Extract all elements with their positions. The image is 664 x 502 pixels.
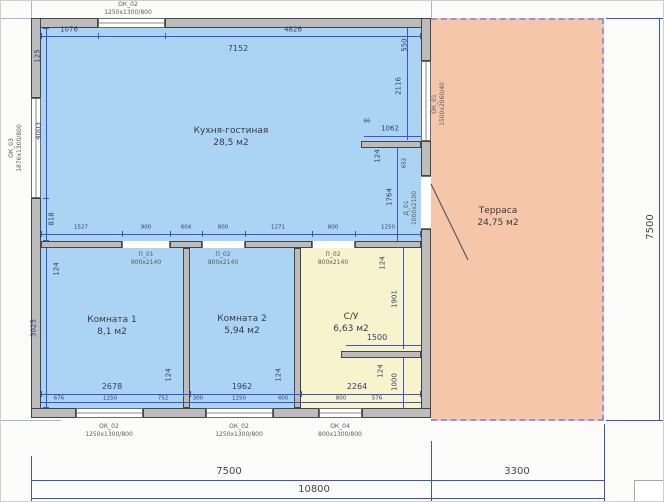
room-area: 28,5 м2 xyxy=(194,137,269,149)
dim-label: 800 xyxy=(328,225,339,231)
dim-tick xyxy=(170,231,171,237)
window-size: 800х1300/800 xyxy=(318,431,362,439)
dim-tick xyxy=(420,33,421,39)
dim-label: 652 xyxy=(402,158,408,169)
dim-label: 752 xyxy=(158,396,169,402)
door-tag: П_02 xyxy=(318,251,348,259)
window-tag: ОК_04 xyxy=(318,423,362,431)
room-area: 24,75 м2 xyxy=(477,217,518,229)
window-right xyxy=(421,61,431,141)
dim-label: 1764 xyxy=(387,188,394,206)
dim-tick xyxy=(301,391,302,397)
window-bottom-2 xyxy=(206,408,273,418)
room1-label: Комната 1 8,1 м2 xyxy=(87,314,136,338)
dim-line xyxy=(403,358,404,408)
dim-label: 124 xyxy=(378,364,385,377)
dim-label: 1271 xyxy=(271,225,285,231)
door-label-terrace: Д_01 1000х2100 xyxy=(403,191,419,225)
door-opening-room1 xyxy=(122,241,170,248)
dim-label: 1250 xyxy=(232,396,246,402)
axis-line xyxy=(431,1,432,18)
dim-label: 676 xyxy=(54,396,65,402)
dim-ext xyxy=(431,441,432,501)
window-bottom-1 xyxy=(76,408,143,418)
dim-ext xyxy=(606,420,663,421)
window-label-bottom-2: ОК_02 1250х1300/800 xyxy=(215,423,263,439)
door-tag: П_01 xyxy=(131,251,161,259)
window-label-bottom-3: ОК_04 800х1300/800 xyxy=(318,423,362,439)
dim-ext xyxy=(604,424,605,501)
wall-segment xyxy=(143,408,206,418)
window-label-top: ОК_02 1250х1300/800 xyxy=(104,1,152,17)
dim-label: 2264 xyxy=(347,383,367,391)
wall-segment xyxy=(362,408,431,418)
dim-tick xyxy=(43,240,49,241)
dim-tick xyxy=(122,231,123,237)
door-label-room2: П_02 800х2140 xyxy=(208,251,238,267)
wall-segment xyxy=(421,141,431,176)
wall-segment xyxy=(245,241,312,248)
wall-segment xyxy=(41,241,122,248)
dim-label: 124 xyxy=(375,149,382,162)
dim-tick xyxy=(355,231,356,237)
room2-label: Комната 2 5,94 м2 xyxy=(217,313,266,337)
wall-segment xyxy=(31,198,41,418)
window-bottom-3 xyxy=(319,408,362,418)
dim-label: 4826 xyxy=(284,27,302,34)
axis-line xyxy=(1,420,61,421)
window-tag: ОК_03 xyxy=(8,124,16,172)
dim-label: 800 xyxy=(218,225,229,231)
wall-segment xyxy=(294,248,301,408)
dim-line xyxy=(46,248,47,408)
kitchen-stub-wall xyxy=(361,141,421,148)
dim-label: 1250 xyxy=(381,225,395,231)
dim-label: 3025 xyxy=(31,319,38,337)
dim-label: 576 xyxy=(372,396,383,402)
room-name: Комната 2 xyxy=(217,313,266,325)
dim-line-bottom xyxy=(31,480,431,481)
door-label-room1: П_01 900х2140 xyxy=(131,251,161,267)
dim-label: 124 xyxy=(54,262,61,275)
wall-segment xyxy=(170,241,202,248)
dim-label: 1901 xyxy=(392,290,399,308)
room-area: 8,1 м2 xyxy=(87,326,136,338)
wall-segment xyxy=(273,408,319,418)
door-size: 900х2140 xyxy=(131,259,161,267)
dim-tick xyxy=(98,33,99,39)
dim-label: 7152 xyxy=(228,45,248,53)
dim-tick xyxy=(41,391,42,397)
window-label-left: ОК_03 1876х1300/800 xyxy=(8,124,24,172)
floor-plan-canvas: 1076 4826 7152 125 4003 818 3025 124 550… xyxy=(0,0,664,502)
window-left xyxy=(31,98,41,198)
dim-tick xyxy=(312,231,313,237)
dim-label: 4003 xyxy=(36,122,43,140)
dim-line-bottom xyxy=(31,498,604,499)
dim-label-total-width: 10800 xyxy=(298,485,330,495)
door-size: 800х2140 xyxy=(318,259,348,267)
dim-line-bottom xyxy=(431,480,604,481)
room-area: 5,94 м2 xyxy=(217,325,266,337)
dim-line-right xyxy=(659,18,660,421)
door-tag: П_02 xyxy=(208,251,238,259)
door-tag: Д_01 xyxy=(403,191,411,225)
dim-tick xyxy=(43,28,49,29)
dim-tick xyxy=(420,231,421,237)
window-label-right: ОК_01 1500х2060/40 xyxy=(431,82,447,126)
drawing-frame-corner xyxy=(634,480,664,502)
dim-label: 124 xyxy=(276,368,283,381)
window-size: 1250х1300/800 xyxy=(104,9,152,17)
dim-tick xyxy=(41,231,42,237)
dim-tick xyxy=(43,198,49,199)
dim-label: 125 xyxy=(35,49,42,62)
window-tag: ОК_02 xyxy=(104,1,152,9)
dim-line xyxy=(41,394,421,395)
door-opening-room2 xyxy=(202,241,245,248)
window-tag: ОК_01 xyxy=(431,82,439,126)
kitchen-label: Кухня-гостиная 28,5 м2 xyxy=(194,125,269,149)
window-tag: ОК_02 xyxy=(215,423,263,431)
dim-tick xyxy=(43,407,49,408)
dim-tick xyxy=(294,391,295,397)
dim-line xyxy=(346,345,421,346)
wall-segment xyxy=(183,248,190,408)
dim-label: 550 xyxy=(402,38,409,51)
dim-tick xyxy=(183,391,184,397)
room-area: 6,63 м2 xyxy=(333,323,368,335)
dim-label: 400 xyxy=(278,396,289,402)
dim-label-terrace-width: 3300 xyxy=(504,467,529,477)
terrace-label: Терраса 24,75 м2 xyxy=(477,205,518,229)
dim-label: 1962 xyxy=(232,383,252,391)
dim-label: 900 xyxy=(141,225,152,231)
dim-tick xyxy=(41,33,42,39)
door-size: 800х2140 xyxy=(208,259,238,267)
dim-label-building-width: 7500 xyxy=(216,467,241,477)
dim-label: 800 xyxy=(336,396,347,402)
dim-label: 1500 xyxy=(367,334,387,342)
dim-ext xyxy=(606,18,663,19)
bathroom-label: С/У 6,63 м2 xyxy=(333,311,368,335)
window-size: 1500х2060/40 xyxy=(439,82,447,126)
dim-label: 2116 xyxy=(396,77,403,95)
dim-label: 300 xyxy=(193,396,204,402)
room-name: Комната 1 xyxy=(87,314,136,326)
dim-tick xyxy=(245,231,246,237)
dim-line xyxy=(397,148,398,241)
dim-label-building-height: 7500 xyxy=(646,214,656,239)
dim-label: 1250 xyxy=(103,396,117,402)
dim-label: 1062 xyxy=(381,126,399,133)
dim-tick xyxy=(190,391,191,397)
dim-label: 124 xyxy=(166,368,173,381)
door-size: 1000х2100 xyxy=(411,191,419,225)
room-name: Терраса xyxy=(477,205,518,217)
dim-line xyxy=(403,248,404,349)
dim-line xyxy=(46,28,47,241)
wall-segment xyxy=(355,241,421,248)
room-name: С/У xyxy=(333,311,368,323)
dim-tick xyxy=(202,231,203,237)
dim-label: 124 xyxy=(380,256,387,269)
dim-tick xyxy=(420,391,421,397)
window-label-bottom-1: ОК_02 1250х1300/800 xyxy=(85,423,133,439)
dim-label: 604 xyxy=(181,225,192,231)
dim-label: 1076 xyxy=(60,27,78,34)
window-size: 1876х1300/800 xyxy=(16,124,24,172)
window-top xyxy=(98,18,165,28)
door-label-su: П_02 800х2140 xyxy=(318,251,348,267)
bathroom-stub-wall xyxy=(341,351,421,358)
dim-tick xyxy=(165,33,166,39)
dim-ext xyxy=(31,456,32,501)
wall-segment xyxy=(31,408,76,418)
dim-line xyxy=(364,136,421,137)
room-name: Кухня-гостиная xyxy=(194,125,269,137)
dim-line xyxy=(41,402,421,403)
window-size: 1250х1300/800 xyxy=(215,431,263,439)
wall-segment xyxy=(421,18,431,61)
window-tag: ОК_02 xyxy=(85,423,133,431)
dim-label: 1527 xyxy=(74,225,88,231)
dim-label: 818 xyxy=(49,212,56,225)
dim-line xyxy=(41,234,421,235)
window-size: 1250х1300/800 xyxy=(85,431,133,439)
dim-label: 1000 xyxy=(392,373,399,391)
dim-label: 66 xyxy=(364,119,371,125)
door-opening-su xyxy=(312,241,355,248)
dim-label: 2678 xyxy=(102,383,122,391)
